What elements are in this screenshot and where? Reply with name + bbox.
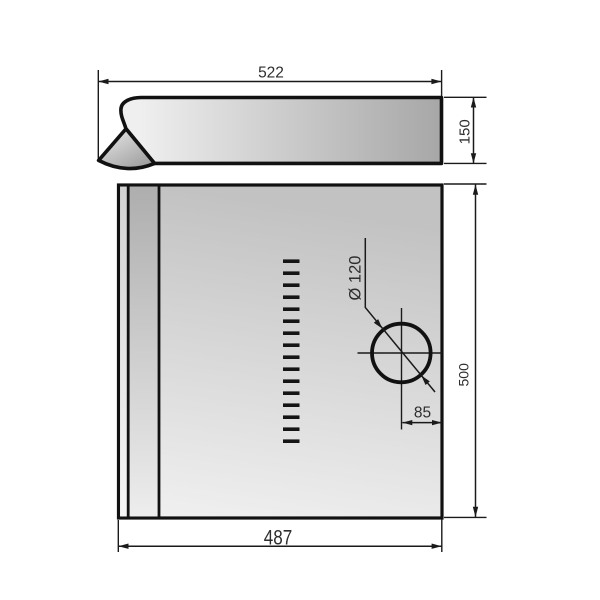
svg-text:522: 522 [258,65,284,82]
svg-text:150: 150 [457,119,474,144]
svg-text:487: 487 [264,527,293,550]
svg-text:85: 85 [414,404,431,421]
svg-text:Ø 120: Ø 120 [347,256,365,301]
svg-text:500: 500 [456,363,472,387]
